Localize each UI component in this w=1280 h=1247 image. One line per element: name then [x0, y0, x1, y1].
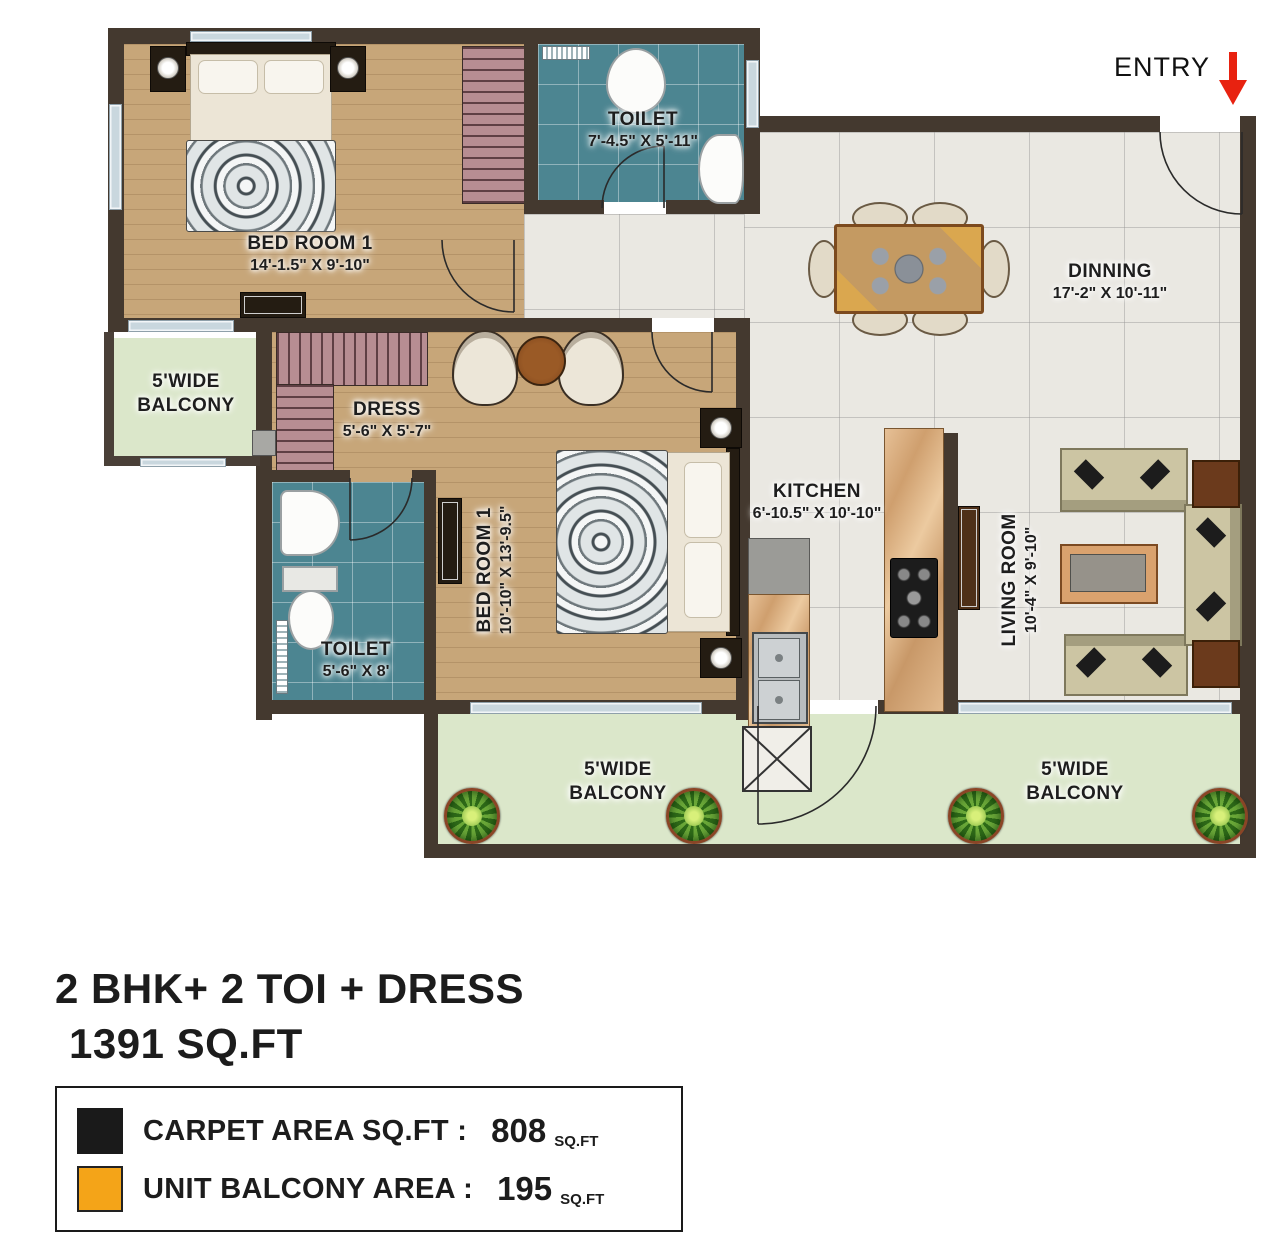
window-bedroom1-balcony: [128, 320, 234, 332]
sofa-cushion: [1140, 459, 1170, 489]
toilet1-name: TOILET: [558, 108, 728, 132]
kitchen-sink-basin: [758, 638, 800, 678]
wall-toilet1-bottom-l: [524, 200, 604, 214]
living-dims: 10'-4" X 9'-10": [1022, 465, 1042, 695]
dress-dims: 5'-6" X 5'-7": [322, 422, 452, 442]
toilet2-name: TOILET: [286, 638, 426, 662]
bed2-dresser: [438, 498, 462, 584]
service-shaft: [742, 726, 812, 792]
tv-screen: [1070, 554, 1146, 592]
living-side-table: [1192, 460, 1240, 508]
entry-label: ENTRY: [1114, 52, 1210, 83]
bedroom1-wardrobe: [462, 46, 526, 204]
balcony-area-label: UNIT BALCONY AREA :: [143, 1173, 473, 1206]
balcony-br-line2: BALCONY: [985, 782, 1165, 806]
kitchen-label: KITCHEN 6'-10.5" X 10'-10": [738, 480, 896, 524]
wall-balcony-bottom: [424, 844, 1256, 858]
bed1-pillow-left: [198, 60, 258, 94]
wall-right-outer: [1240, 116, 1256, 858]
living-sofa-right: [1184, 504, 1242, 646]
dress-name: DRESS: [322, 398, 452, 422]
plan-area: 1391 SQ.FT: [55, 1017, 524, 1072]
kitchen-counter-gray: [748, 538, 810, 596]
legend-row-carpet: CARPET AREA SQ.FT : 808 SQ.FT: [77, 1102, 681, 1160]
living-label: LIVING ROOM 10'-4" X 9'-10": [998, 465, 1042, 695]
living-sofa-top: [1060, 448, 1188, 512]
dress-label: DRESS 5'-6" X 5'-7": [322, 398, 452, 442]
area-legend: CARPET AREA SQ.FT : 808 SQ.FT UNIT BALCO…: [55, 1086, 683, 1232]
sofa-cushion: [1196, 517, 1226, 547]
main-tile-floor: [744, 132, 1240, 700]
balcony-left-line2: BALCONY: [130, 394, 242, 418]
slider-living-balcony: [958, 702, 1232, 714]
legend-row-balcony: UNIT BALCONY AREA : 195 SQ.FT: [77, 1160, 681, 1218]
bed1-pillow-right: [264, 60, 324, 94]
dress-wardrobe-top: [276, 332, 428, 386]
bed2-blanket: [556, 450, 668, 634]
balcony-area-swatch: [77, 1166, 123, 1212]
window-bedroom1-top: [190, 31, 312, 42]
toilet1-dims: 7'-4.5" X 5'-11": [558, 132, 728, 152]
kitchen-sink-basin: [758, 680, 800, 720]
plan-summary: 2 BHK+ 2 TOI + DRESS 1391 SQ.FT: [55, 962, 524, 1071]
bed2-pillow-bottom: [684, 542, 722, 618]
bedroom2-dims: 10'-10" X 13'-9.5": [497, 450, 517, 690]
balcony-plant: [444, 788, 500, 844]
carpet-area-unit: SQ.FT: [554, 1133, 598, 1150]
entry-arrow-down-icon: [1218, 52, 1248, 106]
wall-toilet2-top-l: [272, 470, 350, 482]
sofa-cushion: [1196, 591, 1226, 621]
sofa-cushion: [1076, 647, 1106, 677]
balcony-area-unit: SQ.FT: [560, 1191, 604, 1208]
corridor-floor: [524, 214, 760, 318]
wall-toilet2-top-r: [412, 470, 436, 482]
bed2-pillow-top: [684, 462, 722, 538]
balcony-plant: [1192, 788, 1248, 844]
window-balcony-left-outer: [140, 458, 226, 467]
balcony-area-value: 195: [497, 1170, 552, 1208]
living-tv-table: [1060, 544, 1158, 604]
sofa-cushion: [1142, 647, 1172, 677]
toilet1-sink: [606, 48, 666, 114]
bed1-lamp-right: [337, 57, 359, 79]
balcony-left-label: 5'WIDE BALCONY: [130, 370, 242, 418]
kitchen-dims: 6'-10.5" X 10'-10": [738, 504, 896, 524]
bedroom1-label: BED ROOM 1 14'-1.5" X 9'-10": [200, 232, 420, 276]
bedroom1-name: BED ROOM 1: [200, 232, 420, 256]
living-sofa-bottom: [1064, 634, 1188, 696]
balcony-bl-line2: BALCONY: [528, 782, 708, 806]
entry-indicator: ENTRY: [1114, 52, 1248, 106]
toilet2-tank: [282, 566, 338, 592]
dining-dims: 17'-2" X 10'-11": [1005, 284, 1215, 304]
bed2-lamp-bottom: [710, 647, 732, 669]
toilet2-sink: [280, 490, 340, 556]
carpet-area-swatch: [77, 1108, 123, 1154]
shaft-x-icon: [744, 728, 810, 790]
kitchen-name: KITCHEN: [738, 480, 896, 504]
floor-plan: BED ROOM 1 14'-1.5" X 9'-10" TOILET 7'-4…: [0, 0, 1280, 1247]
window-bedroom1-left: [109, 104, 122, 210]
wall-balcony-left: [424, 714, 438, 858]
window-toilet1-right: [746, 60, 759, 128]
bed2-round-table: [516, 336, 566, 386]
balcony-br-line1: 5'WIDE: [985, 758, 1165, 782]
wall-toilet2-bottom: [256, 700, 438, 714]
plan-title: 2 BHK+ 2 TOI + DRESS: [55, 962, 524, 1017]
balcony-bl-line1: 5'WIDE: [528, 758, 708, 782]
bed2-lamp-top: [710, 417, 732, 439]
shower1-icon: [542, 46, 590, 60]
dining-table: [834, 224, 984, 314]
toilet1-label: TOILET 7'-4.5" X 5'-11": [558, 108, 728, 152]
balcony-left-line1: 5'WIDE: [130, 370, 242, 394]
wall-balcony-l-outer: [104, 332, 114, 464]
toilet2-dims: 5'-6" X 8': [286, 662, 426, 682]
wall-toilet1-left: [524, 44, 538, 210]
balcony-bottom-right-label: 5'WIDE BALCONY: [985, 758, 1165, 806]
kitchen-stove: [890, 558, 938, 638]
kitchen-tall-cabinet: [958, 506, 980, 610]
living-name: LIVING ROOM: [998, 465, 1022, 695]
bed1-lamp-left: [157, 57, 179, 79]
balcony-bottom-left-label: 5'WIDE BALCONY: [528, 758, 708, 806]
bed1-blanket: [186, 140, 336, 232]
wall-midblock-left: [256, 318, 272, 720]
bed1-dresser: [240, 292, 306, 318]
bedroom1-dims: 14'-1.5" X 9'-10": [200, 256, 420, 276]
dining-name: DINNING: [1005, 260, 1215, 284]
bedroom2-label: BED ROOM 1 10'-10" X 13'-9.5": [473, 450, 517, 690]
carpet-area-label: CARPET AREA SQ.FT :: [143, 1115, 467, 1148]
carpet-area-value: 808: [491, 1112, 546, 1150]
toilet2-label: TOILET 5'-6" X 8': [286, 638, 426, 682]
wall-midblock-top-r: [714, 318, 750, 332]
slider-bedroom2-balcony: [470, 702, 702, 714]
wall-kitchen-living: [944, 433, 958, 703]
bedroom2-name: BED ROOM 1: [473, 450, 497, 690]
living-side-table: [1192, 640, 1240, 688]
duct-box: [252, 430, 276, 456]
wall-dining-top: [744, 116, 1160, 132]
dining-label: DINNING 17'-2" X 10'-11": [1005, 260, 1215, 304]
sofa-cushion: [1074, 459, 1104, 489]
